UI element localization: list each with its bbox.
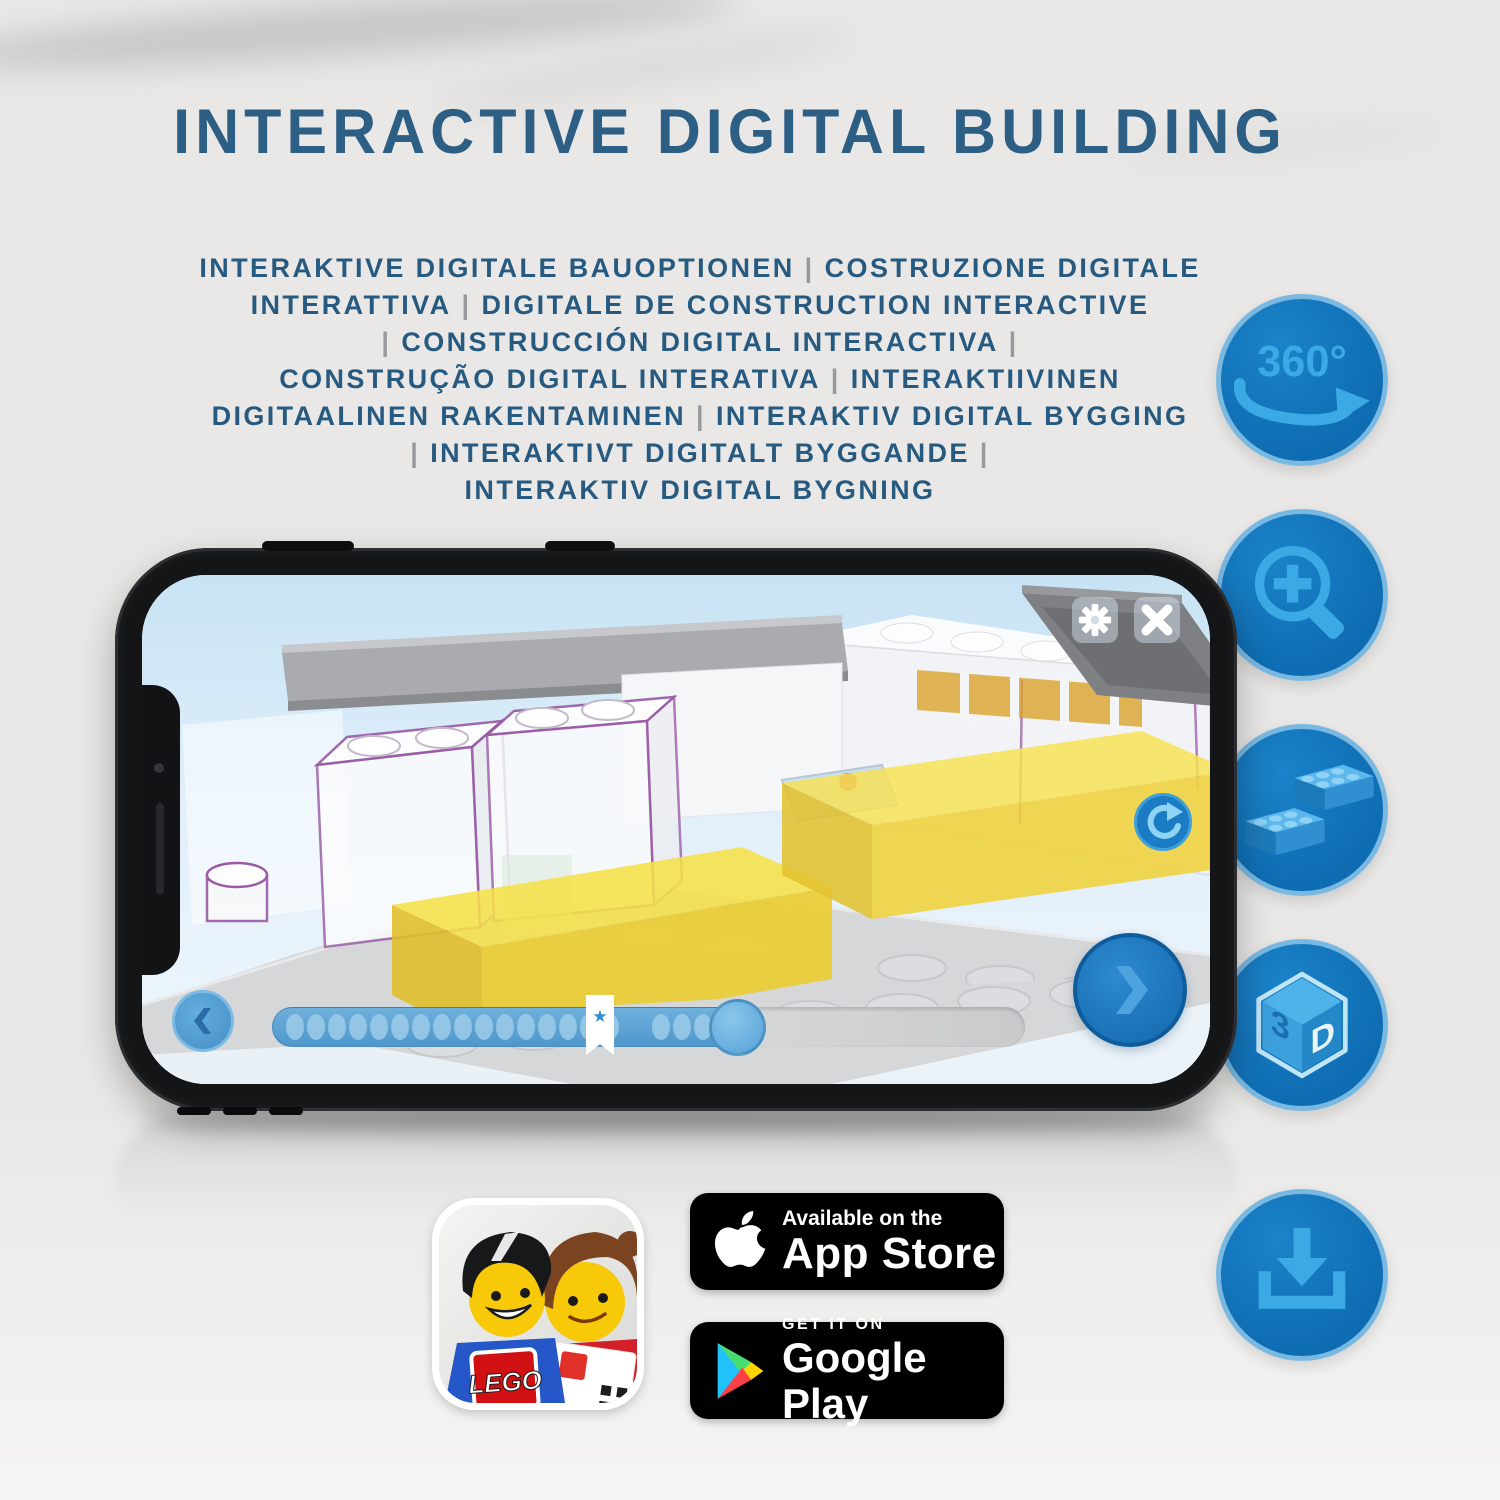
subtitle-line: INTERATTIVA|DIGITALE DE CONSTRUCTION INT… [60, 287, 1340, 324]
brick-upper [1294, 765, 1373, 810]
earpiece-speaker [156, 803, 164, 895]
previous-step-button[interactable] [172, 990, 234, 1052]
volume-button [262, 541, 354, 551]
speaker-slot [177, 1107, 211, 1115]
progress-dot [673, 1014, 691, 1040]
x-icon [1141, 604, 1173, 636]
power-button [545, 541, 615, 551]
page-title: INTERACTIVE DIGITAL BUILDING [0, 95, 1460, 168]
progress-dot [652, 1014, 670, 1040]
subtitle-line: DIGITAALINEN RAKENTAMINEN|INTERAKTIV DIG… [60, 398, 1340, 435]
front-camera [154, 763, 164, 773]
google-play-name: Google Play [782, 1335, 1004, 1427]
app-store-badge[interactable]: Available on the App Store [690, 1193, 1004, 1290]
progress-dot [454, 1014, 472, 1040]
phone-notch [142, 685, 180, 975]
background-marble-streak [0, 0, 741, 84]
progress-dot [517, 1014, 535, 1040]
lego-logo-text: LEGO [467, 1364, 543, 1399]
progress-dot [349, 1014, 367, 1040]
progress-dot [538, 1014, 556, 1040]
next-step-button[interactable] [1073, 933, 1187, 1047]
progress-dot [412, 1014, 430, 1040]
lego-app-icon[interactable]: LEGO [432, 1198, 644, 1410]
google-play-tagline: GET IT ON [782, 1315, 1004, 1335]
subtitle-line: |CONSTRUCCIÓN DIGITAL INTERACTIVA| [60, 324, 1340, 361]
google-play-badge[interactable]: GET IT ON Google Play [690, 1322, 1004, 1419]
download-icon [1216, 1189, 1388, 1361]
progress-dot [559, 1014, 577, 1040]
smartphone: ★ [115, 548, 1237, 1111]
settings-button[interactable] [1072, 597, 1118, 643]
progress-dot [433, 1014, 451, 1040]
rotate-arrow-icon [1143, 802, 1183, 842]
subtitle-line: |INTERAKTIVT DIGITALT BYGGANDE| [60, 435, 1340, 472]
subtitle-line: INTERAKTIVE DIGITALE BAUOPTIONEN|COSTRUZ… [60, 250, 1340, 287]
rotate-view-button[interactable] [1134, 793, 1192, 851]
app-store-tagline: Available on the [782, 1207, 997, 1231]
star-icon: ★ [592, 1007, 607, 1026]
marketing-panel: INTERACTIVE DIGITAL BUILDING INTERAKTIVE… [0, 0, 1500, 1500]
app-store-name: App Store [782, 1231, 997, 1277]
progress-dot [328, 1014, 346, 1040]
360-rotation-icon: 360° [1216, 294, 1388, 466]
subtitle-line: CONSTRUÇÃO DIGITAL INTERATIVA|INTERAKTII… [60, 361, 1340, 398]
apple-logo-icon [714, 1211, 766, 1273]
lego-bricks-icon [1216, 724, 1388, 896]
multilingual-subtitle: INTERAKTIVE DIGITALE BAUOPTIONEN|COSTRUZ… [60, 250, 1340, 509]
build-progress-slider[interactable]: ★ [272, 1007, 1025, 1047]
speaker-slot [223, 1107, 257, 1115]
3d-view-icon: 3 D [1216, 939, 1388, 1111]
gear-icon [1078, 603, 1112, 637]
progress-dot [496, 1014, 514, 1040]
phone-reflection [115, 1120, 1237, 1240]
progress-dot [391, 1014, 409, 1040]
slider-handle[interactable] [709, 999, 766, 1056]
progress-dot [307, 1014, 325, 1040]
360-label: 360° [1257, 338, 1347, 386]
progress-dots [286, 1014, 733, 1040]
chevron-right-icon [1098, 958, 1162, 1022]
zoom-in-icon [1216, 509, 1388, 681]
close-button[interactable] [1134, 597, 1180, 643]
speaker-slot [269, 1107, 303, 1115]
progress-dot [370, 1014, 388, 1040]
progress-dot [475, 1014, 493, 1040]
subtitle-line: INTERAKTIV DIGITAL BYGNING [60, 472, 1340, 509]
google-play-logo-icon [714, 1342, 766, 1400]
chevron-left-icon [185, 1003, 221, 1039]
brick-lower [1245, 808, 1324, 855]
progress-dot [286, 1014, 304, 1040]
app-screen: ★ [142, 575, 1210, 1084]
